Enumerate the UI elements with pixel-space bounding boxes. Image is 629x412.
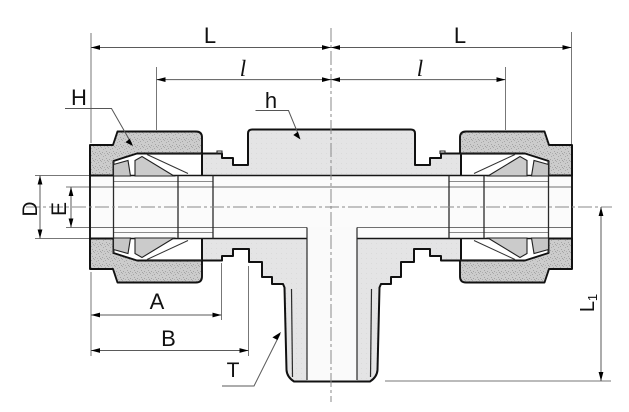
svg-text:E: E: [48, 202, 71, 216]
svg-text:l: l: [417, 56, 423, 81]
svg-text:T: T: [227, 359, 240, 382]
svg-text:l: l: [240, 56, 246, 81]
svg-text:A: A: [150, 289, 165, 314]
svg-text:h: h: [265, 88, 277, 113]
svg-text:B: B: [161, 326, 176, 351]
svg-text:L: L: [454, 23, 466, 48]
svg-text:H: H: [71, 85, 87, 110]
svg-text:L: L: [204, 23, 216, 48]
svg-text:D: D: [19, 201, 42, 216]
